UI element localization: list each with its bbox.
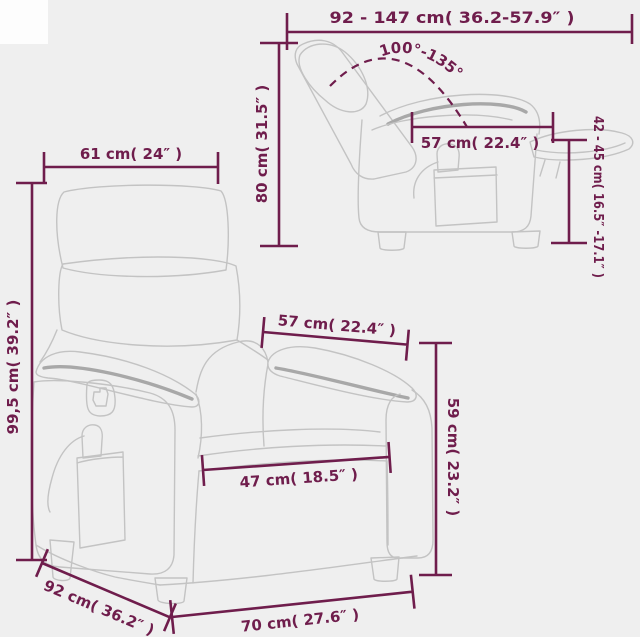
dimension-label: 61 cm( 24″ ) xyxy=(80,145,182,163)
side-armrest-accent xyxy=(388,104,526,124)
dim-overall-width: 70 cm( 27.6″ ) xyxy=(170,575,415,637)
front-left-armrest-accent xyxy=(44,367,192,399)
front-view-chair xyxy=(31,185,433,603)
front-left-armrest xyxy=(36,351,199,407)
front-right-arm-inner xyxy=(263,364,268,446)
front-backrest-side-left xyxy=(40,330,57,362)
side-pocket xyxy=(434,167,497,226)
side-footrest xyxy=(530,130,633,160)
angle-label: 100°-135° xyxy=(377,39,466,83)
dimension-label: 42 - 45 cm( 16.5″ -17.1″ ) xyxy=(590,116,605,278)
corner-patch xyxy=(0,0,48,44)
product-dimension-diagram: 92 - 147 cm( 36.2-57.9″ ) 100°-135° 80 c… xyxy=(0,0,640,637)
side-foot-left xyxy=(378,232,406,250)
dim-overall-depth-range: 92 - 147 cm( 36.2-57.9″ ) xyxy=(287,8,632,50)
dimension-label: 57 cm( 22.4″ ) xyxy=(421,134,539,152)
front-seat-front-top xyxy=(198,445,386,456)
front-left-arm-inner xyxy=(196,394,202,458)
side-foot-right xyxy=(512,231,540,248)
front-foot-front-left xyxy=(155,578,187,604)
dimension-line xyxy=(551,140,587,243)
front-base-left-corner xyxy=(193,471,199,583)
dimension-label: 99,5 cm( 39.2″ ) xyxy=(4,300,22,435)
dim-overall-depth: 92 cm( 36.2″ ) xyxy=(31,549,176,637)
dim-recline-angle: 100°-135° xyxy=(330,39,482,127)
dimension-label: 47 cm( 18.5″ ) xyxy=(239,465,358,491)
dim-armrest-height: 59 cm( 23.2″ ) xyxy=(419,343,462,575)
front-seat-back-edge xyxy=(200,429,380,438)
dimension-label: 100°-135° xyxy=(377,39,466,83)
dim-seat-width: 47 cm( 18.5″ ) xyxy=(202,442,391,494)
front-remote xyxy=(82,425,102,458)
diagram-svg: 92 - 147 cm( 36.2-57.9″ ) 100°-135° 80 c… xyxy=(0,0,640,637)
side-footrest-support xyxy=(540,160,560,178)
dimension-label: 92 cm( 36.2″ ) xyxy=(41,576,157,637)
front-pocket xyxy=(77,452,125,548)
front-right-panel xyxy=(386,390,433,558)
dim-headrest-width: 61 cm( 24″ ) xyxy=(44,145,218,184)
dimension-label: 92 - 147 cm( 36.2-57.9″ ) xyxy=(330,8,575,27)
side-footrest-inner xyxy=(536,143,625,153)
side-headrest-pillow xyxy=(299,44,368,112)
dim-overall-height: 99,5 cm( 39.2″ ) xyxy=(4,183,47,560)
dimension-label: 80 cm( 31.5″ ) xyxy=(253,85,271,203)
dim-seat-height-range: 42 - 45 cm( 16.5″ -17.1″ ) xyxy=(551,116,605,278)
dim-side-seat-width: 57 cm( 22.4″ ) xyxy=(412,112,553,152)
front-lower-backrest xyxy=(196,341,268,392)
recline-lever-handle xyxy=(93,388,108,406)
front-mid-cushion xyxy=(59,257,240,346)
dim-backrest-height: 80 cm( 31.5″ ) xyxy=(253,43,298,246)
dimension-label: 70 cm( 27.6″ ) xyxy=(240,605,360,635)
front-headrest-cushion xyxy=(57,185,229,276)
dimension-label: 59 cm( 23.2″ ) xyxy=(444,398,462,516)
